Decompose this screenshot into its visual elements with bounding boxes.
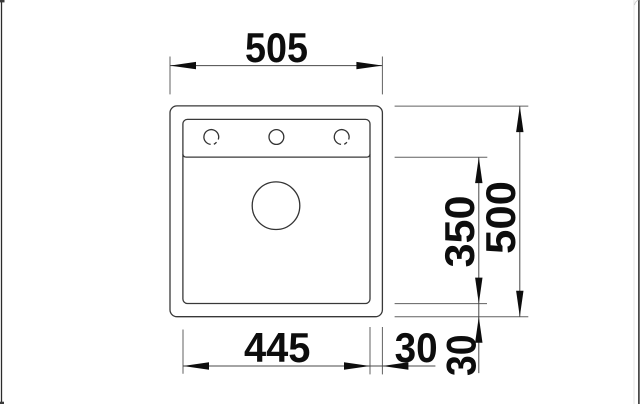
svg-text:30: 30 [395,324,438,371]
svg-text:350: 350 [436,196,483,268]
svg-text:445: 445 [244,324,311,371]
svg-text:30: 30 [437,334,484,376]
svg-text:505: 505 [245,24,308,71]
svg-text:500: 500 [477,181,524,254]
